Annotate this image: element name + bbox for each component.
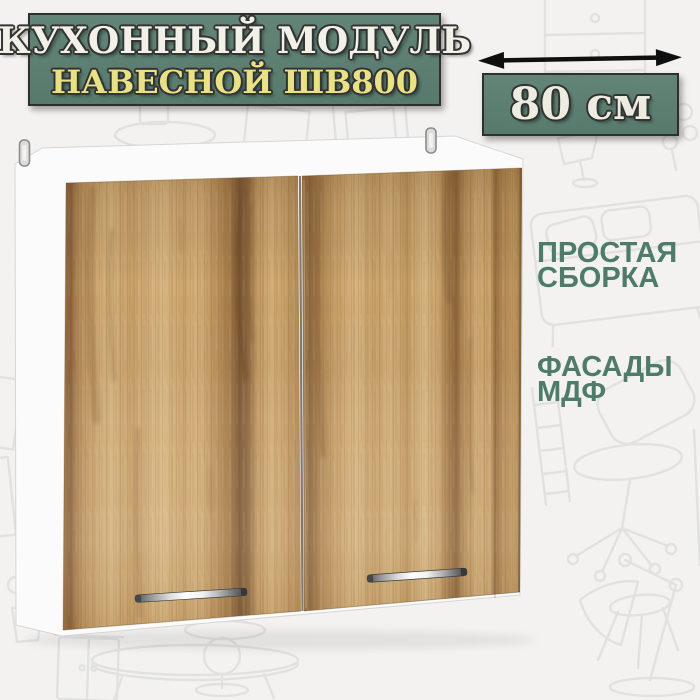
dimension-label: 80 см [510,79,652,130]
width-arrow-icon [476,44,684,74]
feature-easy-assembly: ПРОСТАЯ СБОРКА [537,241,677,291]
title-badge: КУХОННЫЙ МОДУЛЬ НАВЕСНОЙ ШВ800 [28,13,441,106]
product-image-canvas: КУХОННЫЙ МОДУЛЬ НАВЕСНОЙ ШВ800 80 см ПРО… [0,0,700,700]
product-model: НАВЕСНОЙ ШВ800 [51,63,418,101]
wood-texture [60,165,526,637]
mounting-hook-right [426,128,436,153]
feature-mdf-fronts: ФАСАДЫ МДФ [537,355,673,405]
feature-line: СБОРКА [537,266,677,291]
mounting-hook-left [20,140,30,166]
product-title: КУХОННЫЙ МОДУЛЬ [0,19,471,63]
feature-line: МДФ [537,380,673,405]
dimension-badge: 80 см [482,73,679,136]
cabinet-shadow [25,630,535,650]
